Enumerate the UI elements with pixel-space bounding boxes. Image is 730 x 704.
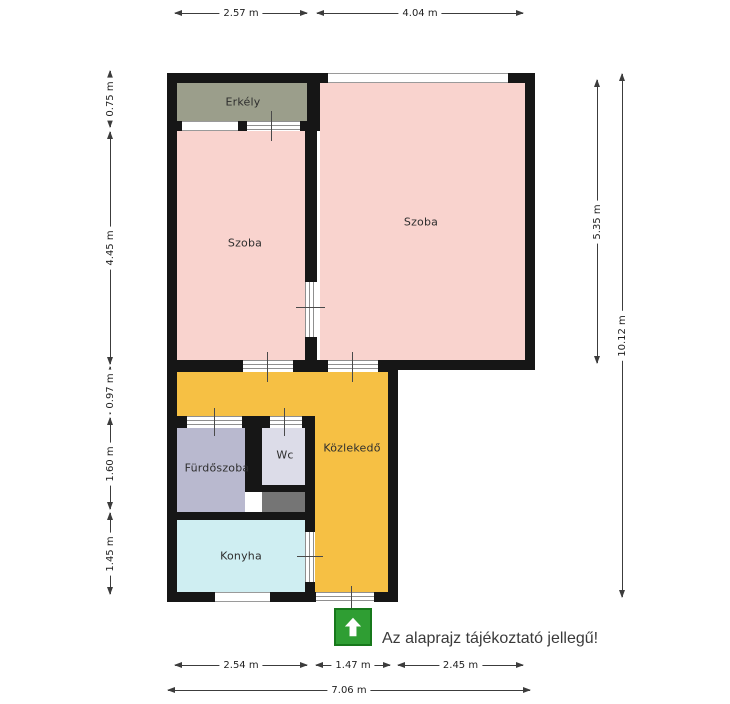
door-axis bbox=[214, 408, 215, 436]
up-arrow-icon bbox=[340, 614, 366, 640]
dimension-label: 4.04 m bbox=[398, 8, 441, 21]
wall bbox=[167, 416, 187, 428]
dimension-label: 5.35 m bbox=[592, 200, 605, 243]
arrow-up-icon bbox=[594, 79, 600, 87]
dimension-label: 1.60 m bbox=[105, 442, 118, 485]
arrow-left-icon bbox=[316, 10, 324, 16]
wc-door bbox=[270, 416, 302, 428]
arrow-right-icon bbox=[516, 662, 524, 668]
wall bbox=[378, 360, 398, 372]
dimension-left-3: 0.97 m bbox=[110, 367, 111, 414]
arrow-right-icon bbox=[523, 687, 531, 693]
dimension-right-2: 10.12 m bbox=[622, 74, 623, 597]
arrow-left-icon bbox=[397, 662, 405, 668]
arrow-right-icon bbox=[516, 10, 524, 16]
arrow-down-icon bbox=[594, 356, 600, 364]
wall bbox=[245, 428, 262, 492]
kitchen-door bbox=[305, 532, 315, 582]
door-axis bbox=[296, 307, 325, 308]
main-room-window bbox=[328, 73, 508, 83]
balcony-window bbox=[182, 121, 238, 131]
wall bbox=[167, 360, 243, 372]
kitchen-window bbox=[215, 592, 270, 602]
door-axis bbox=[284, 408, 285, 436]
door-axis bbox=[271, 111, 272, 141]
room-label-erkely: Erkély bbox=[226, 96, 261, 109]
floorplan-canvas: Erkély Szoba Szoba Fürdőszoba Wc Közleke… bbox=[0, 0, 730, 704]
door-axis bbox=[297, 556, 323, 557]
dimension-left-1: 0.75 m bbox=[110, 71, 111, 127]
arrow-down-icon bbox=[107, 587, 113, 595]
dimension-top-1: 2.57 m bbox=[175, 13, 307, 14]
wall bbox=[398, 360, 535, 370]
dimension-bottom-2: 1.47 m bbox=[316, 665, 390, 666]
disclaimer-text: Az alaprajz tájékoztató jellegű! bbox=[382, 630, 598, 648]
dimension-label: 10.12 m bbox=[617, 311, 630, 361]
arrow-up-icon bbox=[619, 73, 625, 81]
dimension-label: 2.57 m bbox=[219, 8, 262, 21]
dimension-label: 1.47 m bbox=[331, 660, 374, 673]
arrow-down-icon bbox=[619, 590, 625, 598]
arrow-left-icon bbox=[174, 10, 182, 16]
arrow-up-icon bbox=[107, 417, 113, 425]
dimension-bottom-total: 7.06 m bbox=[168, 690, 530, 691]
wall bbox=[167, 512, 315, 520]
arrow-left-icon bbox=[315, 662, 323, 668]
wall bbox=[388, 360, 398, 602]
wall bbox=[293, 360, 328, 372]
room-label-furdoszoba: Fürdőszoba bbox=[185, 462, 250, 475]
room-label-wc: Wc bbox=[276, 449, 293, 462]
room-kozlekedo-upper bbox=[177, 372, 388, 416]
dimension-top-2: 4.04 m bbox=[317, 13, 523, 14]
wall bbox=[525, 83, 535, 370]
szoba-right-door bbox=[328, 360, 378, 372]
szoba-left-door bbox=[243, 360, 293, 372]
dimension-label: 7.06 m bbox=[327, 685, 370, 698]
wall bbox=[305, 582, 315, 602]
wall bbox=[305, 337, 317, 360]
utility-shaft bbox=[262, 492, 305, 512]
dimension-label: 4.45 m bbox=[105, 226, 118, 269]
dimension-bottom-3: 2.45 m bbox=[398, 665, 523, 666]
dimension-label: 1.45 m bbox=[105, 532, 118, 575]
dimension-left-4: 1.60 m bbox=[110, 418, 111, 509]
arrow-down-icon bbox=[107, 502, 113, 510]
entrance-arrow-icon bbox=[334, 608, 372, 646]
wall bbox=[305, 121, 317, 282]
arrow-up-icon bbox=[107, 131, 113, 139]
wall bbox=[167, 83, 177, 602]
door-axis bbox=[267, 352, 268, 382]
entrance-door bbox=[316, 592, 374, 604]
room-label-szoba-right: Szoba bbox=[404, 216, 438, 229]
dimension-right-1: 5.35 m bbox=[597, 80, 598, 363]
dimension-left-2: 4.45 m bbox=[110, 132, 111, 364]
arrow-up-icon bbox=[107, 512, 113, 520]
room-label-szoba-left: Szoba bbox=[228, 237, 262, 250]
dimension-label: 2.54 m bbox=[219, 660, 262, 673]
arrow-left-icon bbox=[167, 687, 175, 693]
balcony-door bbox=[247, 121, 300, 131]
room-label-konyha: Konyha bbox=[220, 550, 262, 563]
dimension-bottom-1: 2.54 m bbox=[175, 665, 307, 666]
arrow-down-icon bbox=[107, 357, 113, 365]
room-divider-door bbox=[305, 282, 317, 337]
dimension-label: 2.45 m bbox=[439, 660, 482, 673]
arrow-right-icon bbox=[300, 10, 308, 16]
door-axis bbox=[352, 352, 353, 382]
dimension-label: 0.97 m bbox=[105, 369, 118, 412]
wall bbox=[242, 416, 270, 428]
dimension-label: 0.75 m bbox=[105, 77, 118, 120]
room-label-kozlekedo: Közlekedő bbox=[323, 442, 380, 455]
dimension-left-5: 1.45 m bbox=[110, 513, 111, 594]
arrow-right-icon bbox=[383, 662, 391, 668]
arrow-left-icon bbox=[174, 662, 182, 668]
arrow-down-icon bbox=[107, 120, 113, 128]
arrow-right-icon bbox=[300, 662, 308, 668]
